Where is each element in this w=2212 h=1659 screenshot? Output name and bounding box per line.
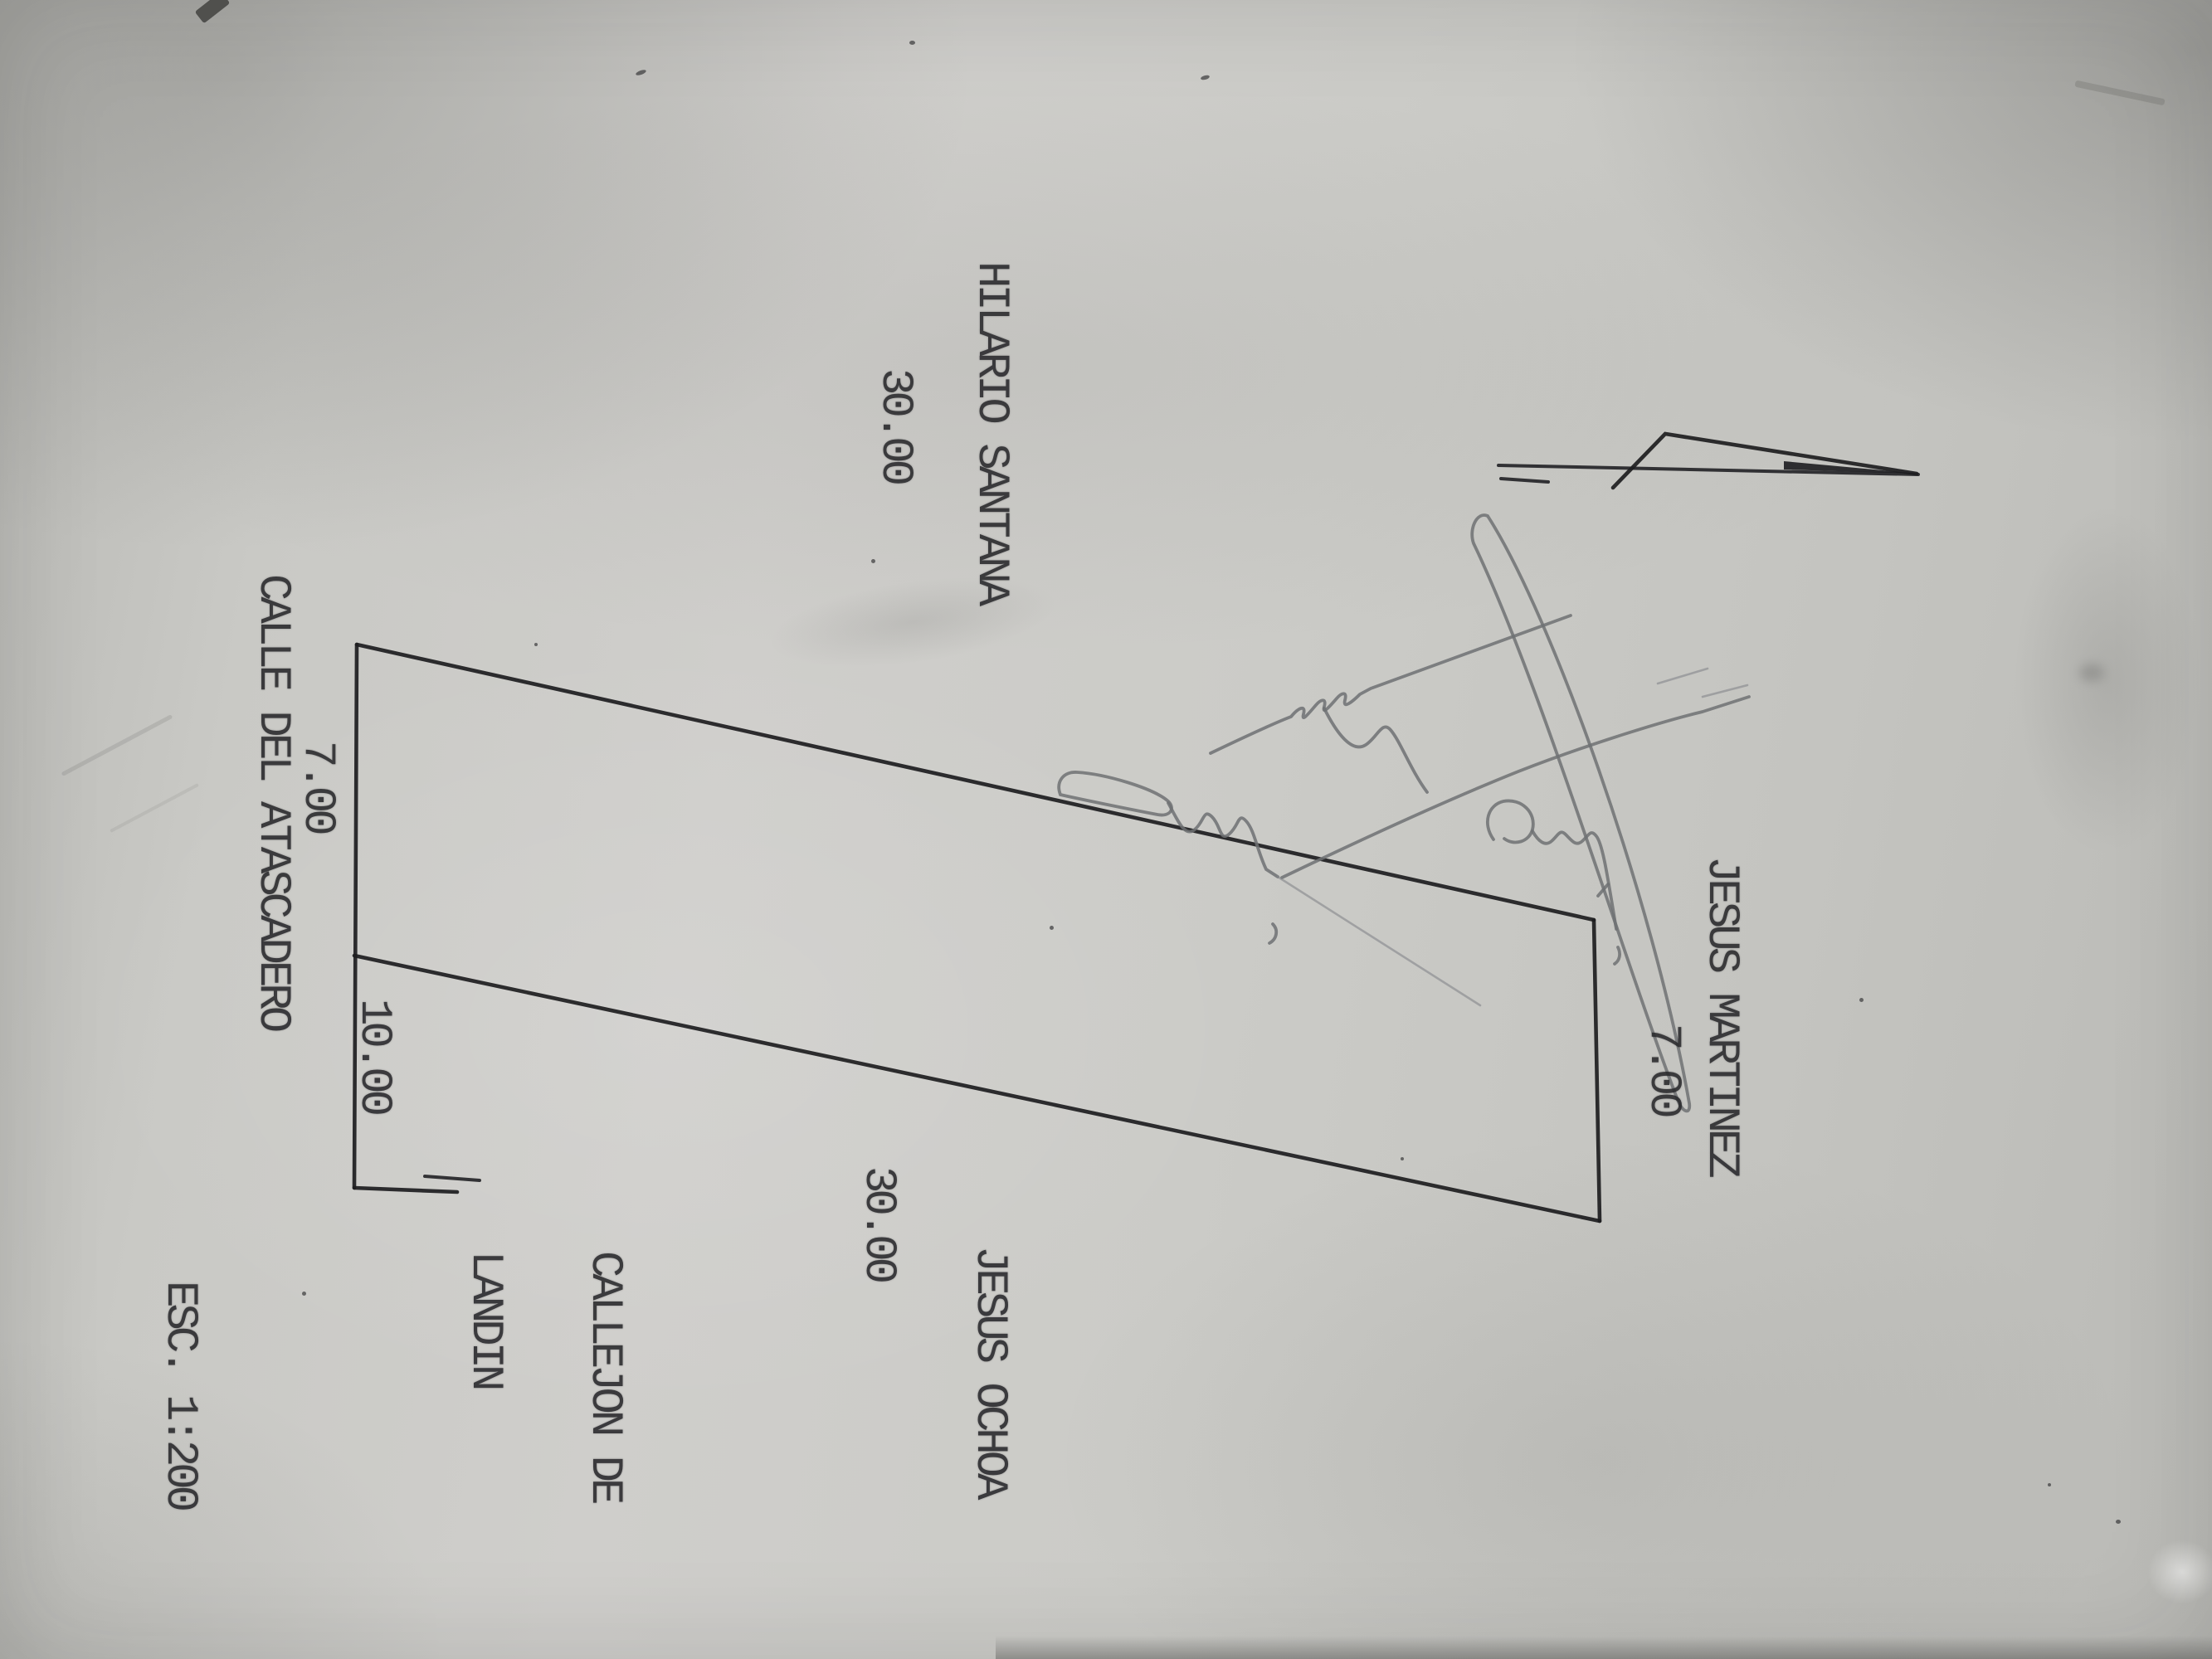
corner-tick bbox=[425, 1176, 480, 1180]
alley-name-label: CALLEJON DE LANDIN bbox=[385, 1251, 704, 1501]
signature-descender-squiggle bbox=[1324, 708, 1427, 792]
north-arrow-base-tick bbox=[1501, 479, 1548, 482]
signature bbox=[1059, 515, 1749, 1111]
dimension-upper-label: 30.00 bbox=[876, 368, 913, 482]
signature-dash bbox=[1703, 685, 1747, 697]
neighbor-lower-label: JESUS OCHOA bbox=[971, 1246, 1007, 1496]
parcel-outline bbox=[354, 645, 1600, 1221]
parcel-edge-bottom bbox=[354, 956, 1600, 1221]
neighbor-right-label: JESUS MARTINEZ bbox=[1703, 856, 1739, 1175]
signature-loop bbox=[1472, 515, 1689, 1111]
signature-dash bbox=[1658, 669, 1708, 684]
alley-name-line2: LANDIN bbox=[465, 1251, 504, 1501]
signature-apostrophe bbox=[1615, 947, 1620, 964]
signature-stroke-first-name bbox=[1211, 615, 1571, 753]
signature-tail-line bbox=[1278, 877, 1480, 1005]
scale-label: ESC. 1:200 bbox=[161, 1281, 197, 1508]
parcel-edge-right bbox=[1594, 920, 1600, 1221]
signature-comma bbox=[1269, 924, 1276, 943]
signature-left-zigzag bbox=[1168, 803, 1278, 877]
signature-surname-loop bbox=[1488, 800, 1533, 842]
dimension-lower-label: 30.00 bbox=[860, 1166, 896, 1280]
north-arrow-head bbox=[1613, 434, 1917, 488]
scanned-survey-sketch-photo: HILARIO SANTANA 30.00 JESUS MARTINEZ 7.0… bbox=[0, 0, 2212, 1659]
signature-stroke-cross bbox=[1282, 697, 1749, 878]
neighbor-upper-label: HILARIO SANTANA bbox=[972, 261, 1009, 602]
dimension-alley-frontage-label: 10.00 bbox=[355, 999, 392, 1112]
alley-name-line1: CALLEJON DE bbox=[584, 1251, 624, 1501]
frontage-stub-line bbox=[354, 1188, 457, 1192]
dimension-street-frontage-label: 7.00 bbox=[299, 741, 335, 832]
north-arrow bbox=[1498, 434, 1918, 488]
parcel-edge-top bbox=[357, 645, 1594, 920]
street-name-label: CALLE DEL ATASCADERO bbox=[254, 574, 290, 1029]
dimension-right-label: 7.00 bbox=[1644, 1024, 1681, 1115]
signature-left-loop bbox=[1059, 772, 1172, 815]
